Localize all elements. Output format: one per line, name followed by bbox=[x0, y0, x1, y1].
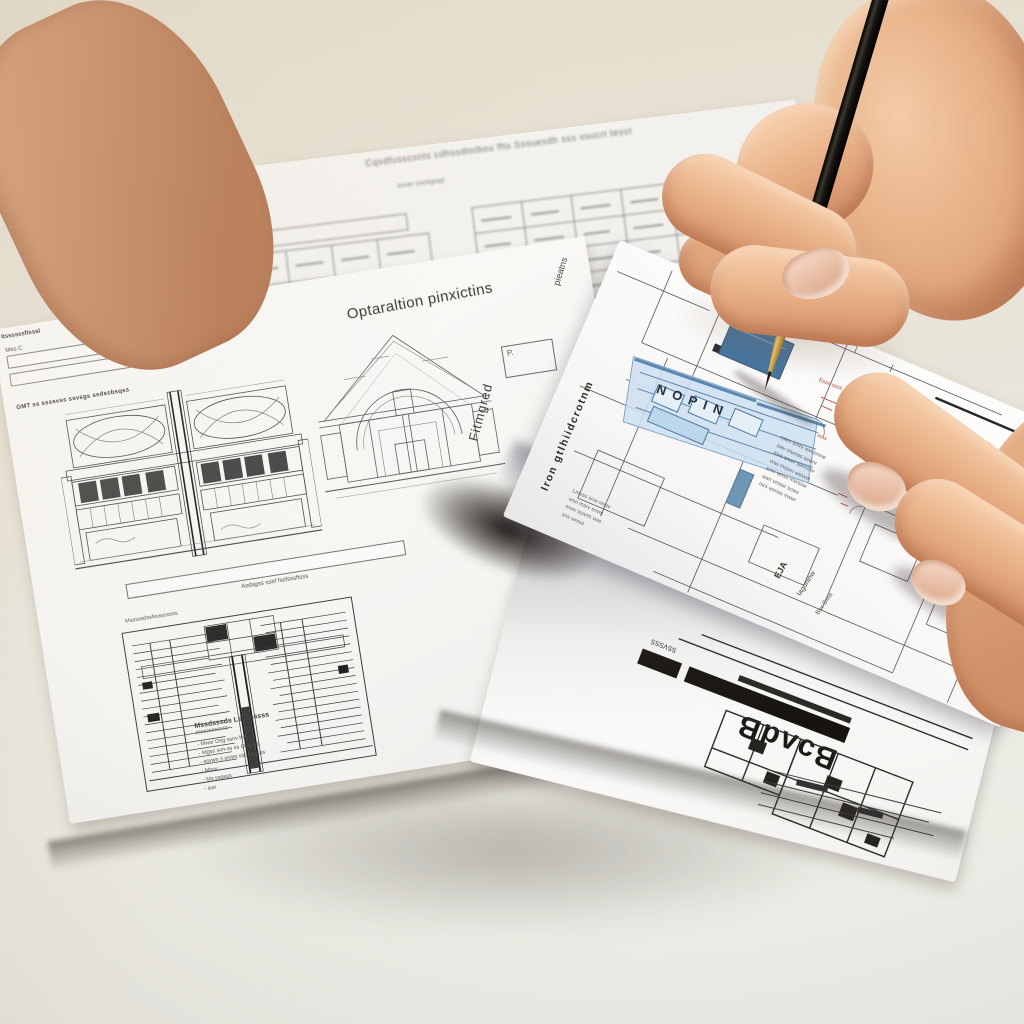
blue-marker-rect bbox=[726, 469, 754, 508]
elevation-drawing bbox=[50, 370, 325, 587]
left-paper-rotated-note: pieatns bbox=[551, 256, 569, 287]
photo-scene: Cqsdfusscsnts cdhssdtstbou ffts Sssuesdh… bbox=[0, 0, 1024, 1024]
left-paper-corner-note: Itssssssftssal bbox=[1, 329, 41, 341]
back-paper-subheading: bsser ssvrkgsqd bbox=[397, 177, 444, 190]
left-paper-title: Optaraltion pinxictins bbox=[285, 268, 554, 334]
left-paper-small-plan-label: P. bbox=[501, 338, 557, 378]
